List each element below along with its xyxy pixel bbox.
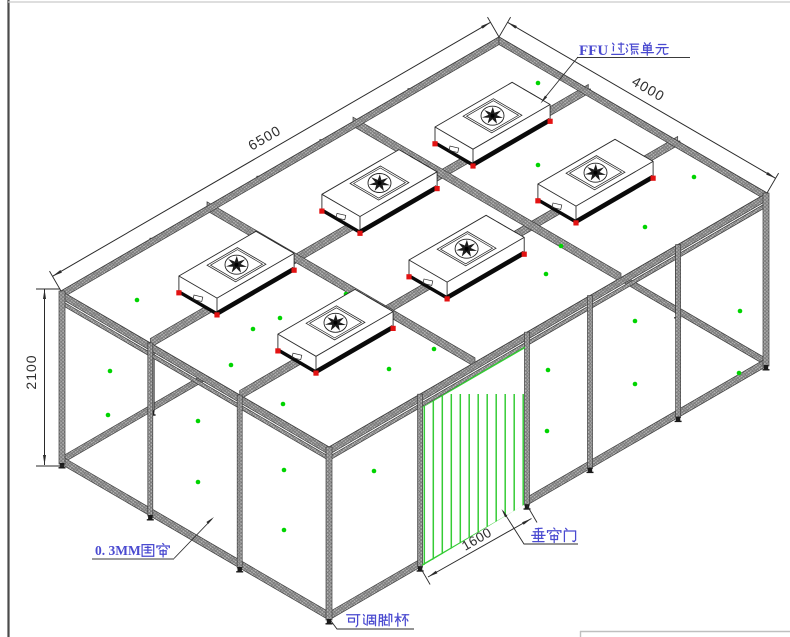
svg-text:2100: 2100 xyxy=(23,354,39,389)
svg-text:FFU: FFU xyxy=(579,43,608,59)
svg-text:0. 3MM: 0. 3MM xyxy=(95,543,141,558)
